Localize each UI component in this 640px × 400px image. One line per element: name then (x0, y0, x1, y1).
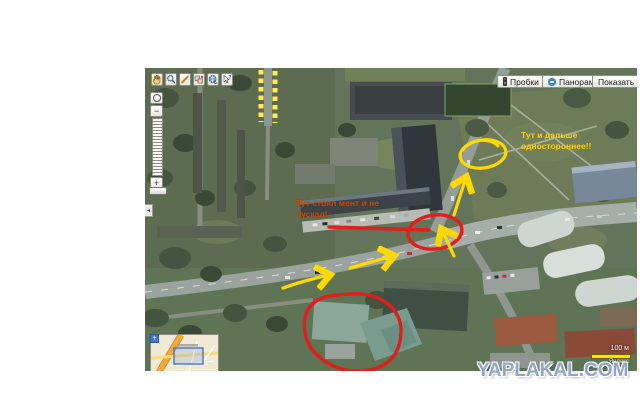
satellite-map[interactable]: Тут и дальше одностороннее!! Тут стоял м… (145, 68, 637, 371)
pan-hand-icon (152, 74, 162, 85)
magnifier-icon (166, 74, 176, 85)
watermark: YAPLAKAL.COM (477, 360, 628, 382)
globe-icon (208, 74, 218, 85)
map-type-tool-button[interactable] (207, 73, 219, 86)
ruler-pencil-icon (180, 74, 190, 85)
pan-tool-button[interactable] (151, 73, 163, 86)
note-oneway-line2: одностороннее!! (521, 141, 591, 152)
edit-objects-tool-button[interactable] (193, 73, 205, 86)
overview-minimap[interactable] (150, 334, 219, 371)
cursor-question-icon: ? (222, 74, 232, 85)
scale-label: 100 м (611, 345, 629, 352)
overview-button[interactable] (150, 92, 163, 104)
minimap-toggle-button[interactable]: + (150, 334, 159, 343)
zoom-area-tool-button[interactable] (165, 73, 177, 86)
show-dropdown-button[interactable]: Показать ▾ (592, 75, 637, 88)
panorama-icon (548, 78, 556, 86)
annotation-note-cop: Тут стоял мент и не пускал! (296, 198, 379, 220)
traffic-button-label: Пробки (510, 77, 539, 87)
minimap-canvas (151, 335, 218, 371)
zoom-slider[interactable] (152, 118, 163, 176)
identify-tool-button[interactable]: ? (221, 73, 233, 86)
minimap-place-label (177, 344, 198, 347)
annotation-note-oneway: Тут и дальше одностороннее!! (521, 130, 591, 152)
collapse-panel-button[interactable]: ◂ (145, 204, 153, 217)
measure-tool-button[interactable] (179, 73, 191, 86)
satellite-imagery (145, 68, 637, 371)
note-cop-line1: Тут стоял мент и не (296, 198, 379, 209)
show-button-label: Показать (598, 77, 634, 87)
traffic-light-icon (503, 77, 507, 86)
note-oneway-line1: Тут и дальше (521, 130, 591, 141)
zoom-out-button[interactable]: − (150, 105, 163, 117)
overview-icon (153, 94, 161, 102)
svg-text:?: ? (228, 75, 231, 81)
zoom-control: − + (150, 92, 166, 189)
page: Тут и дальше одностороннее!! Тут стоял м… (0, 0, 640, 400)
minimap-viewport-rect[interactable] (174, 348, 203, 364)
traffic-button[interactable]: Пробки (497, 75, 545, 88)
zoom-slider-handle[interactable] (149, 187, 167, 195)
note-cop-line2: пускал! (296, 209, 379, 220)
map-toolbar: ? (151, 73, 233, 86)
shapes-icon (194, 74, 204, 85)
